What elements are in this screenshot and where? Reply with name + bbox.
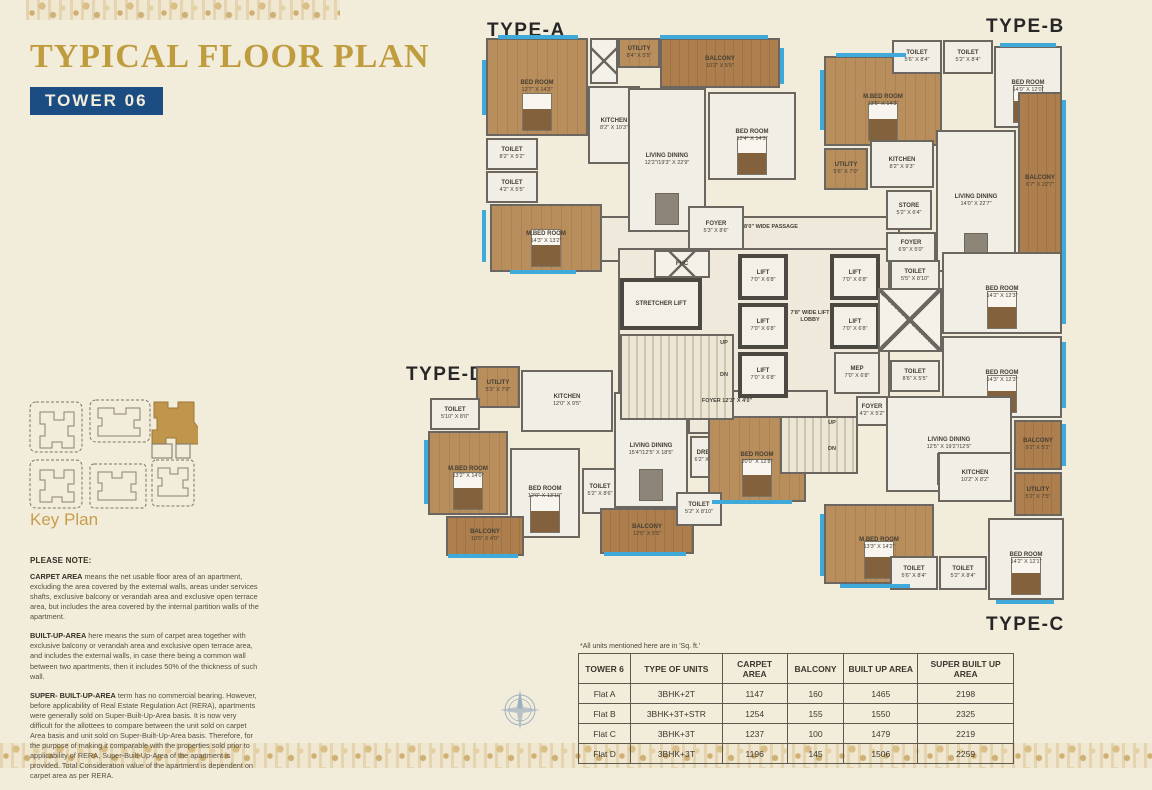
room-size: 6'9" X 5'0" — [899, 247, 924, 253]
room-size: 12'0" X 9'5" — [553, 401, 581, 407]
room-size: 5'6" X 8'4" — [905, 57, 930, 63]
room-size: 14'2" X 12'3" — [986, 293, 1017, 299]
room-fhc: FHC — [654, 250, 710, 278]
room-size: 6'7" X 22'7" — [1026, 182, 1054, 188]
window-strip — [780, 48, 784, 84]
room-toilet: TOILET8'6" X 5'5" — [890, 360, 940, 392]
room-size: 4'2" X 5'2" — [860, 411, 885, 417]
room-size: 10'2" X 5'5" — [706, 63, 734, 69]
plan-annotation-up: UP — [824, 420, 840, 427]
room-utility: UTILITY5'6" X 7'0" — [824, 148, 868, 190]
plan-annotation-up: UP — [716, 340, 732, 347]
room-balcony: BALCONY6'7" X 22'7" — [1018, 92, 1062, 272]
room-label: BED ROOM — [741, 452, 774, 459]
room-label: BALCONY — [470, 529, 500, 536]
room-size: 7'0" X 6'8" — [751, 375, 776, 381]
room-lift: LIFT7'0" X 6'8" — [738, 254, 788, 300]
shaft-area — [590, 38, 618, 84]
room-utility: UTILITY8'4" X 5'5" — [618, 38, 660, 68]
room-size: 14'3" X 13'2" — [530, 238, 561, 244]
room-size: 12'2"/19'3" X 22'9" — [645, 160, 690, 166]
room-label: TOILET — [444, 407, 465, 414]
room-size: 7'0" X 6'8" — [751, 277, 776, 283]
window-strip — [424, 440, 428, 504]
window-strip — [1062, 424, 1066, 466]
room-label: TOILET — [688, 502, 709, 509]
room-bed-room: BED ROOM14'2" X 12'1" — [988, 518, 1064, 600]
room-label: FOYER — [862, 404, 883, 411]
room-size: 5'2" X 8'10" — [685, 509, 713, 515]
window-strip — [482, 210, 486, 262]
plan-annotation-dn: DN — [716, 372, 732, 379]
shaft-area — [878, 288, 942, 352]
room-foyer: FOYER4'2" X 5'2" — [856, 396, 888, 426]
room-m-bed-room: M.BED ROOM14'3" X 13'2" — [490, 204, 602, 272]
room-size: 7'0" X 6'8" — [843, 277, 868, 283]
room-toilet: TOILET5'6" X 8'4" — [892, 40, 942, 74]
room-bed-room: BED ROOM14'2" X 12'3" — [942, 252, 1062, 334]
room-size: 13'3" X 14'2" — [863, 544, 894, 550]
room-label: BED ROOM — [736, 129, 769, 136]
room-label: MEP — [850, 366, 863, 373]
room-size: 15'4"/12'5" X 18'5" — [629, 450, 674, 456]
room-size: 8'2" X 10'3" — [600, 125, 628, 131]
window-strip — [660, 35, 768, 39]
room-size: 14'3" X 12'3" — [986, 377, 1017, 383]
window-strip — [1062, 258, 1066, 324]
room-stretcher-lift: STRETCHER LIFT — [620, 278, 702, 330]
room-size: 5'2" X 7'5" — [1026, 494, 1051, 500]
window-strip — [448, 554, 518, 558]
room-lift: LIFT7'0" X 6'8" — [830, 303, 880, 349]
room-size: 13'2" X 14'0" — [452, 473, 483, 479]
room-lift: LIFT7'0" X 6'8" — [738, 352, 788, 398]
room-size: 12'0" X 13'10" — [528, 493, 562, 499]
floor-plan: BED ROOM12'7" X 14'3"UTILITY8'4" X 5'5"B… — [0, 0, 1152, 768]
room-toilet: TOILET4'2" X 5'5" — [486, 171, 538, 203]
room-mep: MEP7'0" X 6'8" — [834, 352, 880, 394]
room-toilet: TOILET5'2" X 8'10" — [676, 492, 722, 526]
room-utility: UTILITY5'3" X 7'0" — [476, 366, 520, 408]
room-label: UTILITY — [835, 162, 858, 169]
room-size: 5'2" X 8'4" — [951, 573, 976, 579]
room-label: KITCHEN — [554, 394, 581, 401]
room-size: 5'10" X 8'0" — [441, 414, 469, 420]
room-label: LIFT — [757, 319, 770, 326]
room-toilet: TOILET5'2" X 8'4" — [939, 556, 987, 590]
room-label: LIVING DINING — [646, 153, 689, 160]
plan-annotation-dn: DN — [824, 446, 840, 453]
room-label: LIVING DINING — [630, 443, 673, 450]
room-label: M.BED ROOM — [859, 537, 899, 544]
room-label: BALCONY — [1025, 175, 1055, 182]
room-label: KITCHEN — [962, 470, 989, 477]
plan-annotation-7-8-wide-lift-lobby: 7'8" WIDE LIFT LOBBY — [790, 310, 830, 324]
room-label: STORE — [899, 203, 920, 210]
room-lift: LIFT7'0" X 6'8" — [738, 303, 788, 349]
unit-type-label-type-d: TYPE-D — [406, 364, 485, 386]
room-size: 12'5" X 19'2"/12'5" — [927, 444, 972, 450]
room-kitchen: KITCHEN10'2" X 8'2" — [938, 452, 1012, 502]
room-size: 12'7" X 14'3" — [521, 87, 552, 93]
plan-annotation-8-0-wide-passage: 8'0" WIDE PASSAGE — [716, 224, 826, 231]
room-label: TOILET — [904, 369, 925, 376]
room-size: 10'5" X 4'0" — [471, 536, 499, 542]
bed-icon — [530, 495, 560, 533]
room-kitchen: KITCHEN12'0" X 9'5" — [521, 370, 613, 432]
room-size: 4'2" X 5'5" — [500, 187, 525, 193]
room-label: TOILET — [904, 269, 925, 276]
room-label: LIFT — [757, 368, 770, 375]
room-balcony: BALCONY9'2" X 5'2" — [1014, 420, 1062, 470]
room-label: KITCHEN — [601, 118, 628, 125]
bed-icon — [737, 137, 767, 175]
window-strip — [482, 60, 486, 115]
window-strip — [996, 600, 1054, 604]
room-toilet: TOILET8'2" X 5'2" — [486, 138, 538, 170]
window-strip — [836, 53, 906, 57]
window-strip — [820, 514, 824, 576]
window-strip — [1062, 100, 1066, 260]
room-label: BED ROOM — [1012, 80, 1045, 87]
bed-icon — [522, 93, 552, 131]
room-balcony: BALCONY10'5" X 4'0" — [446, 516, 524, 556]
room-label: LIFT — [849, 270, 862, 277]
window-strip — [1000, 43, 1056, 47]
unit-type-label-type-b: TYPE-B — [986, 16, 1065, 38]
dining-table-icon — [639, 469, 663, 501]
room-label: LIFT — [757, 270, 770, 277]
room-size: 5'5" X 8'10" — [901, 276, 929, 282]
window-strip — [604, 552, 686, 556]
room-balcony: BALCONY10'2" X 5'5" — [660, 38, 780, 88]
room-label: TOILET — [501, 180, 522, 187]
room-label: TOILET — [957, 50, 978, 57]
room-size: 12'4" X 14'3" — [736, 136, 767, 142]
room-size: 8'6" X 5'5" — [903, 376, 928, 382]
room-label: LIVING DINING — [955, 194, 998, 201]
room-size: 12'5" X 5'5" — [633, 531, 661, 537]
room-label: UTILITY — [487, 380, 510, 387]
room-utility: UTILITY5'2" X 7'5" — [1014, 472, 1062, 516]
window-strip — [820, 70, 824, 130]
room-size: 9'2" X 5'2" — [1026, 445, 1051, 451]
window-strip — [840, 584, 910, 588]
room-label: BED ROOM — [521, 80, 554, 87]
room-label: M.BED ROOM — [526, 231, 566, 238]
room-size: 14'2" X 12'1" — [1010, 559, 1041, 565]
room-size: 5'6" X 7'0" — [834, 169, 859, 175]
unit-type-label-type-c: TYPE-C — [986, 614, 1065, 636]
room-bed-room: BED ROOM12'4" X 14'3" — [708, 92, 796, 180]
room-size: 5'2" X 8'4" — [956, 57, 981, 63]
room-label: TOILET — [906, 50, 927, 57]
room-size: 8'2" X 9'3" — [890, 164, 915, 170]
window-strip — [712, 500, 792, 504]
room-foyer: FOYER6'9" X 5'0" — [886, 232, 936, 262]
room-label: BALCONY — [1023, 438, 1053, 445]
room-toilet: TOILET5'10" X 8'0" — [430, 398, 480, 430]
room-size: 5'3" X 7'0" — [486, 387, 511, 393]
window-strip — [1062, 342, 1066, 408]
room-size: 10'2" X 8'2" — [961, 477, 989, 483]
room-label: BED ROOM — [529, 486, 562, 493]
room-label: TOILET — [589, 484, 610, 491]
room-label: LIVING DINING — [928, 437, 971, 444]
window-strip — [498, 35, 578, 39]
room-size: 7'0" X 6'8" — [751, 326, 776, 332]
room-label: UTILITY — [628, 46, 651, 53]
room-size: 13'5" X 14'3" — [867, 101, 898, 107]
room-label: KITCHEN — [889, 157, 916, 164]
room-size: 8'2" X 5'2" — [500, 154, 525, 160]
room-living-dining: LIVING DINING14'0" X 22'7" — [936, 130, 1016, 272]
bed-icon — [868, 103, 898, 141]
room-label: BALCONY — [632, 524, 662, 531]
room-label: BED ROOM — [1010, 552, 1043, 559]
room-size: 8'4" X 5'5" — [627, 53, 652, 59]
plan-annotation-foyer-12-3-x-4-0: FOYER 12'3" X 4'0" — [692, 398, 762, 405]
room-size: 5'2" X 6'4" — [897, 210, 922, 216]
room-size: 14'0" X 22'7" — [960, 201, 991, 207]
room-label: STRETCHER LIFT — [636, 301, 687, 308]
room-kitchen: KITCHEN8'2" X 9'3" — [870, 140, 934, 188]
room-label: M.BED ROOM — [448, 466, 488, 473]
room-label: BED ROOM — [986, 286, 1019, 293]
stair-area — [780, 416, 858, 474]
room-label: FHC — [676, 261, 688, 268]
room-label: UTILITY — [1027, 487, 1050, 494]
room-lift: LIFT7'0" X 6'8" — [830, 254, 880, 300]
room-bed-room: BED ROOM12'7" X 14'3" — [486, 38, 588, 136]
room-size: 7'0" X 6'8" — [843, 326, 868, 332]
room-label: FOYER — [901, 240, 922, 247]
room-size: 7'0" X 6'8" — [845, 373, 870, 379]
room-label: BED ROOM — [986, 370, 1019, 377]
room-label: TOILET — [903, 566, 924, 573]
room-label: BALCONY — [705, 56, 735, 63]
room-label: TOILET — [952, 566, 973, 573]
room-m-bed-room: M.BED ROOM13'2" X 14'0" — [428, 431, 508, 515]
room-label: LIFT — [849, 319, 862, 326]
room-size: 20'0" X 12'8" — [741, 459, 772, 465]
room-size: 5'6" X 8'4" — [902, 573, 927, 579]
room-toilet: TOILET5'2" X 8'4" — [943, 40, 993, 74]
room-size: 5'2" X 8'6" — [588, 491, 613, 497]
room-store: STORE5'2" X 6'4" — [886, 190, 932, 230]
room-label: TOILET — [501, 147, 522, 154]
window-strip — [510, 270, 576, 274]
room-label: M.BED ROOM — [863, 94, 903, 101]
dining-table-icon — [655, 193, 679, 225]
